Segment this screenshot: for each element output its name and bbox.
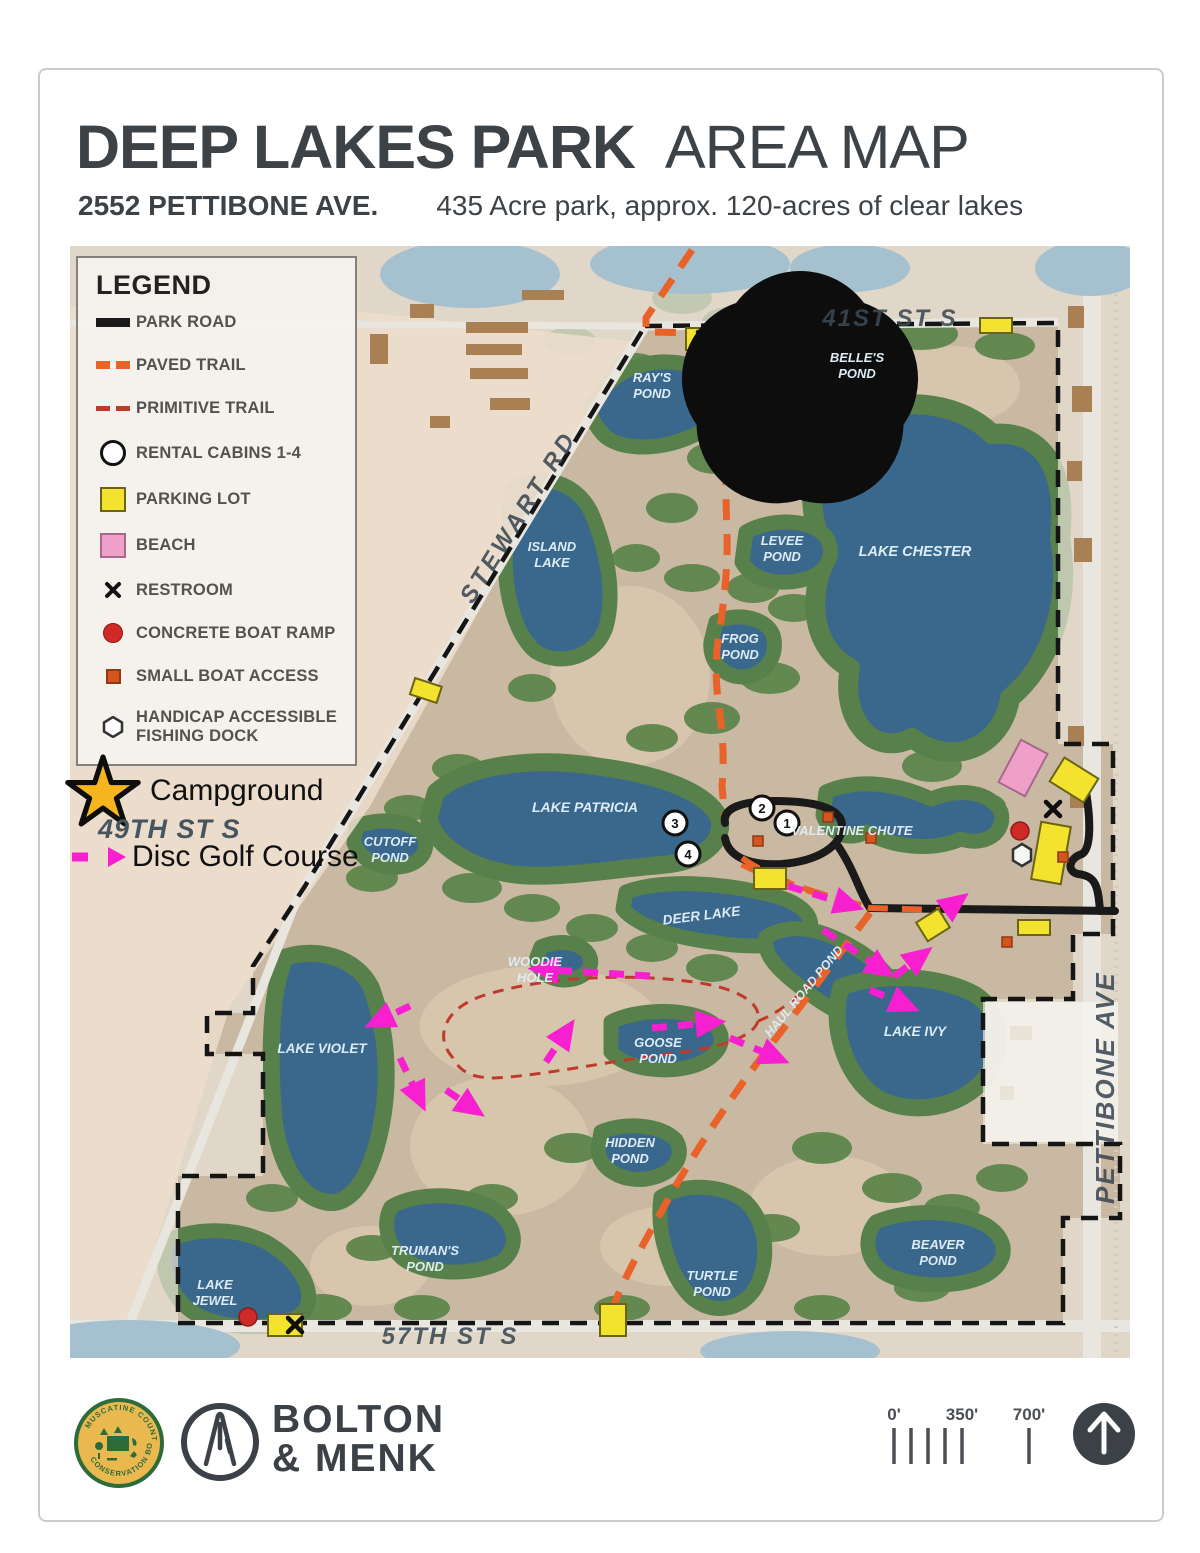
parking-lot-57th-mid	[600, 1304, 626, 1336]
campground-label: Campground	[150, 774, 323, 808]
park-description: 435 Acre park, approx. 120-acres of clea…	[436, 190, 1023, 222]
parking-lot-ne	[980, 318, 1012, 333]
conservation-board-logo: MUSCATINE COUNTY CONSERVATION BOARD	[74, 1398, 164, 1493]
svg-text:HIDDEN: HIDDEN	[605, 1135, 655, 1150]
lake-label-patricia: LAKE PATRICIA	[532, 799, 638, 815]
small-boat-swatch	[90, 669, 136, 684]
cabin-4: 4	[676, 842, 700, 866]
svg-text:WOODIE: WOODIE	[508, 954, 562, 969]
svg-text:2: 2	[758, 801, 765, 816]
svg-text:POND: POND	[838, 366, 876, 381]
svg-text:TURTLE: TURTLE	[686, 1268, 737, 1283]
svg-text:3: 3	[671, 816, 678, 831]
lake-label-violet: LAKE VIOLET	[277, 1041, 368, 1056]
cabin-2: 2	[750, 796, 774, 820]
svg-text:POND: POND	[406, 1259, 444, 1274]
parking-lot-cabins	[754, 868, 786, 889]
svg-text:POND: POND	[633, 386, 671, 401]
svg-text:POND: POND	[919, 1253, 957, 1268]
legend-item-beach: BEACH	[90, 533, 347, 558]
svg-text:LAKE: LAKE	[534, 555, 570, 570]
paved-trail-swatch	[90, 361, 136, 369]
page-title-light: AREA MAP	[665, 113, 969, 181]
svg-text:1: 1	[783, 816, 790, 831]
disc-golf-label: Disc Golf Course	[132, 840, 359, 874]
street-label-pettibone: PETTIBONE AVE	[1090, 971, 1120, 1204]
bolton-menk-logo-icon	[178, 1400, 262, 1489]
primitive-trail-swatch	[90, 406, 136, 411]
lake-label-jewel: LAKEJEWEL	[193, 1277, 238, 1308]
svg-text:POND: POND	[721, 647, 759, 662]
svg-text:0': 0'	[887, 1405, 901, 1424]
lake-label-frog: FROGPOND	[721, 631, 759, 662]
street-label-41st: 41ST ST S	[821, 305, 957, 332]
svg-text:TRUMAN'S: TRUMAN'S	[391, 1243, 459, 1258]
park-address: 2552 PETTIBONE AVE.	[78, 190, 378, 222]
legend-item-handicap-dock: HANDICAP ACCESSIBLE FISHING DOCK	[90, 708, 347, 746]
park-road-swatch	[90, 318, 136, 327]
page-title-bold: DEEP LAKES PARK	[76, 113, 635, 181]
legend-item-small-boat: SMALL BOAT ACCESS	[90, 665, 347, 687]
bolton-menk-wordmark: BOLTON & MENK	[272, 1400, 445, 1478]
lake-label-chester: LAKE CHESTER	[859, 544, 972, 560]
campground-star-marker	[762, 351, 838, 423]
parking-lot-swatch	[90, 487, 136, 512]
svg-text:350': 350'	[946, 1405, 978, 1424]
lake-label-rays: RAY'SPOND	[633, 370, 672, 401]
legend-item-restroom: RESTROOM	[90, 579, 347, 601]
boat-ramp-swatch	[90, 623, 136, 643]
page-title: DEEP LAKES PARK AREA MAP	[76, 112, 1146, 182]
legend-item-paved-trail: PAVED TRAIL	[90, 354, 347, 376]
disc-golf-arrow-icon	[68, 845, 130, 869]
street-label-57th: 57TH ST S	[382, 1323, 519, 1350]
svg-text:BEAVER: BEAVER	[911, 1237, 965, 1252]
lake-label-island: ISLANDLAKE	[528, 539, 577, 570]
svg-text:BELLE'S: BELLE'S	[830, 350, 885, 365]
beach-swatch	[90, 533, 136, 558]
legend-title: LEGEND	[96, 270, 347, 301]
restroom-x-icon	[90, 581, 136, 599]
lake-violet-shape	[271, 953, 386, 1202]
svg-text:FROG: FROG	[721, 631, 759, 646]
legend-item-boat-ramp: CONCRETE BOAT RAMP	[90, 622, 347, 644]
map-scale-bar: 0' 350' 700'	[886, 1404, 1061, 1473]
svg-text:LEVEE: LEVEE	[761, 533, 804, 548]
lake-label-valentine: VALENTINE CHUTE	[791, 823, 912, 838]
legend-item-rental-cabins: RENTAL CABINS 1-4	[90, 440, 347, 466]
page-subtitle: 2552 PETTIBONE AVE. 435 Acre park, appro…	[78, 190, 1138, 222]
svg-text:HOLE: HOLE	[517, 970, 553, 985]
fishing-dock-hexagon	[1013, 844, 1031, 866]
svg-text:RAY'S: RAY'S	[633, 370, 672, 385]
rental-cabin-swatch	[90, 440, 136, 466]
svg-text:700': 700'	[1013, 1405, 1045, 1424]
legend-panel: LEGEND PARK ROAD PAVED TRAIL PRIMITIVE T…	[76, 256, 357, 766]
boat-ramp-jewel	[239, 1308, 257, 1326]
lake-label-goose: GOOSEPOND	[634, 1035, 682, 1066]
fishing-dock-hexagon-icon	[90, 716, 136, 738]
svg-text:ISLAND: ISLAND	[528, 539, 577, 554]
svg-text:POND: POND	[611, 1151, 649, 1166]
footer: MUSCATINE COUNTY CONSERVATION BOARD	[0, 1392, 1200, 1502]
lake-label-turtle: TURTLEPOND	[686, 1268, 737, 1299]
lake-label-ivy: LAKE IVY	[884, 1024, 948, 1039]
lake-label-levee: LEVEEPOND	[761, 533, 804, 564]
svg-text:POND: POND	[763, 549, 801, 564]
svg-text:JEWEL: JEWEL	[193, 1293, 238, 1308]
legend-item-park-road: PARK ROAD	[90, 311, 347, 333]
north-arrow-icon	[1070, 1400, 1138, 1473]
legend-item-primitive-trail: PRIMITIVE TRAIL	[90, 397, 347, 419]
svg-text:LAKE: LAKE	[197, 1277, 233, 1292]
svg-text:POND: POND	[639, 1051, 677, 1066]
boat-ramp-east	[1011, 822, 1029, 840]
cabin-3: 3	[663, 811, 687, 835]
svg-text:CUTOFF: CUTOFF	[364, 834, 418, 849]
lake-label-hidden: HIDDENPOND	[605, 1135, 655, 1166]
svg-text:GOOSE: GOOSE	[634, 1035, 682, 1050]
legend-item-parking-lot: PARKING LOT	[90, 487, 347, 512]
svg-text:4: 4	[684, 847, 692, 862]
svg-text:POND: POND	[693, 1284, 731, 1299]
parking-lot-east	[1018, 920, 1050, 935]
svg-text:POND: POND	[371, 850, 409, 865]
lake-ivy-shape	[837, 978, 998, 1108]
disc-golf-annotation: Disc Golf Course	[68, 840, 359, 874]
